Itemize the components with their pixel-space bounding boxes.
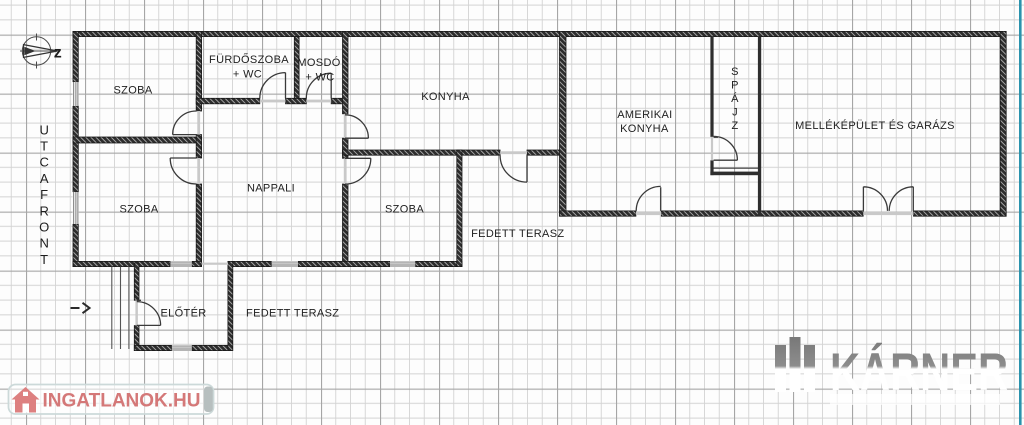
svg-text:SZOBA: SZOBA [119,204,158,216]
svg-text:SZOBA: SZOBA [113,85,152,97]
svg-text:FÜRDŐSZOBA: FÜRDŐSZOBA [209,52,289,66]
svg-text:KONYHA: KONYHA [620,123,669,135]
svg-text:MOSDÓ: MOSDÓ [297,56,340,69]
svg-text:+ WC: + WC [305,72,334,84]
svg-text:FEDETT TERASZ: FEDETT TERASZ [471,228,564,240]
svg-text:UTCAFRONT: UTCAFRONT [39,122,50,267]
svg-text:SPÁJZ: SPÁJZ [731,66,739,132]
svg-text:ELŐTÉR: ELŐTÉR [160,305,206,319]
svg-text:AMERIKAI: AMERIKAI [617,109,672,121]
svg-text:SZOBA: SZOBA [385,204,424,216]
svg-text:MELLÉKÉPÜLET ÉS GARÁZS: MELLÉKÉPÜLET ÉS GARÁZS [795,119,955,132]
svg-text:KONYHA: KONYHA [421,91,470,103]
svg-text:FEDETT TERASZ: FEDETT TERASZ [246,308,339,320]
svg-text:z: z [54,44,62,61]
svg-text:+ WC: + WC [233,69,262,81]
svg-text:INGATLANOK.HU: INGATLANOK.HU [43,390,201,412]
svg-text:NAPPALI: NAPPALI [247,183,295,195]
svg-text:KÁRNER: KÁRNER [830,342,1008,402]
